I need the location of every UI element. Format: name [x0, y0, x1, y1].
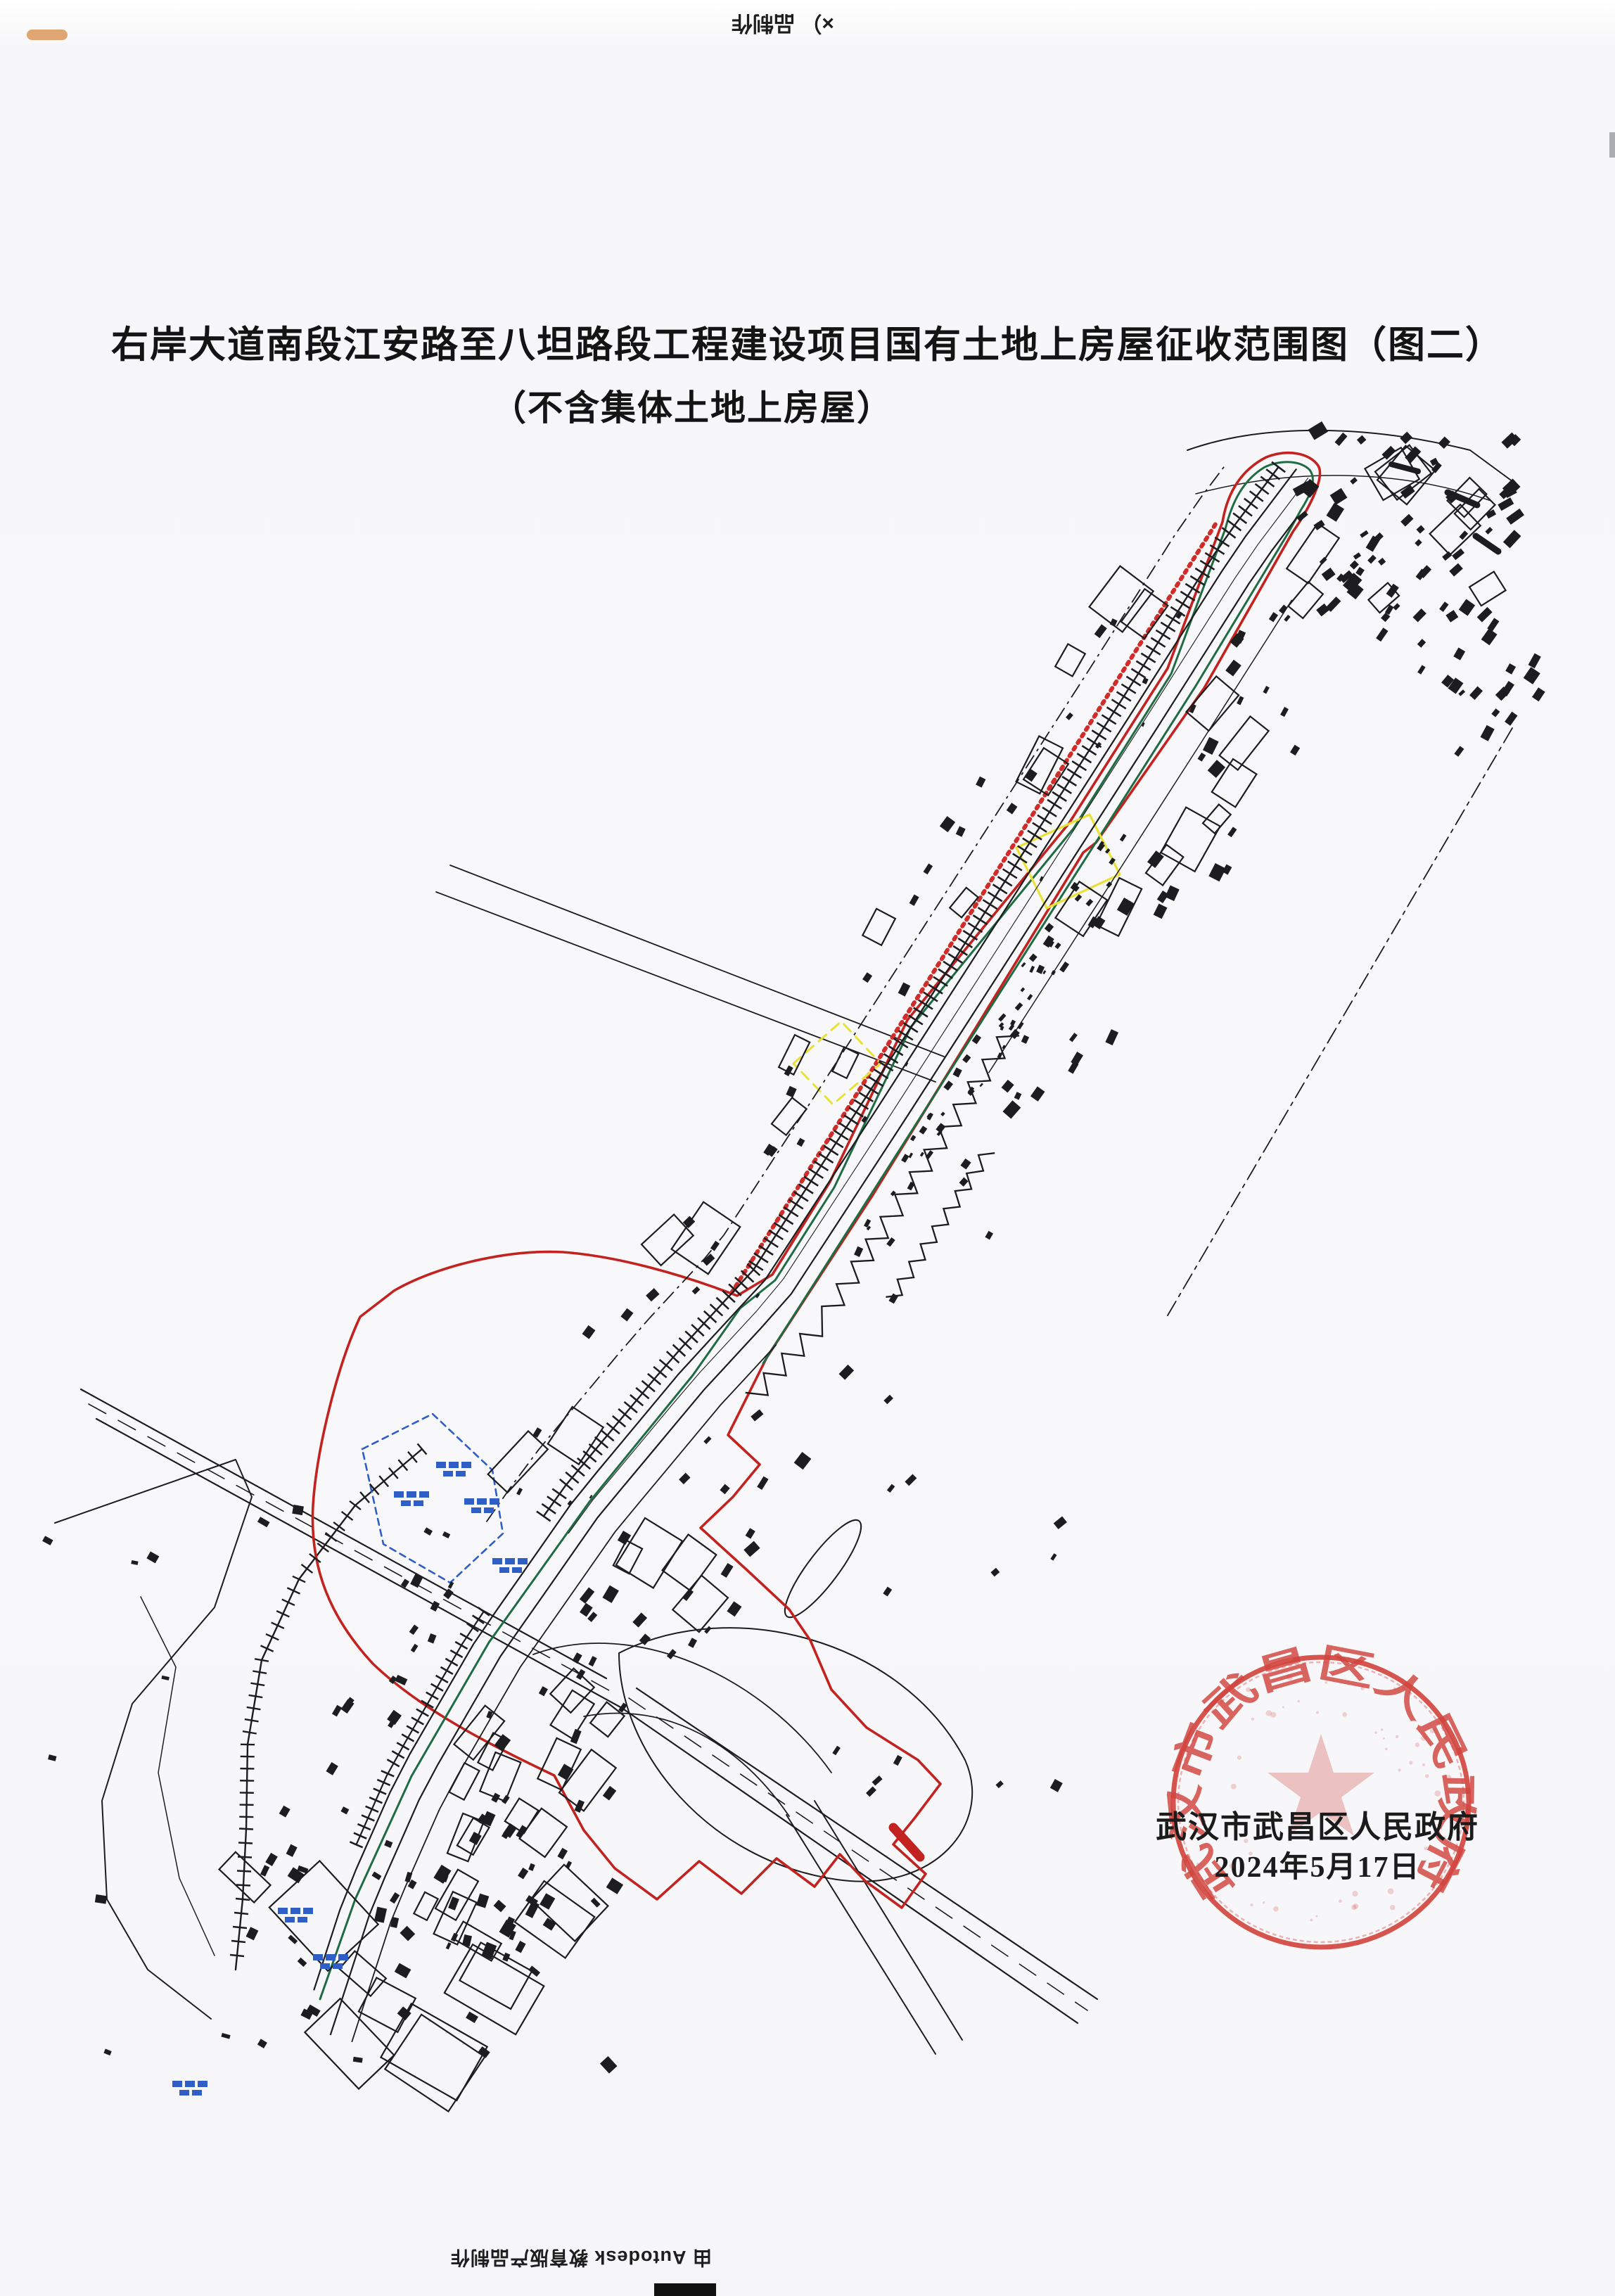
- shore-building-mark: [1415, 539, 1422, 546]
- shore-building-mark: [1454, 746, 1464, 756]
- embankment-tick: [455, 1642, 467, 1649]
- embankment-tick: [601, 1430, 613, 1441]
- embankment-tick: [804, 1177, 818, 1186]
- seal-ink-speck: [1310, 1919, 1313, 1922]
- shore-building-mark: [1506, 509, 1524, 525]
- embankment-tick: [426, 1692, 438, 1699]
- building-mark: [1094, 624, 1107, 638]
- building-mark: [898, 983, 911, 997]
- embankment-tick: [1161, 623, 1175, 632]
- embankment-tick: [362, 1815, 374, 1820]
- building-mark: [924, 863, 933, 874]
- south-road-edge-2: [815, 1801, 962, 2040]
- embankment-tick: [618, 1409, 631, 1420]
- building-mark: [572, 1652, 582, 1664]
- building-mark: [570, 1729, 582, 1744]
- building-mark: [1290, 745, 1300, 755]
- building-outline: [1186, 676, 1239, 730]
- building-outline: [520, 1809, 567, 1857]
- map-drawing: 武汉市武昌区人民政府 武汉市武昌区人民政府 2024年5月17日: [0, 0, 1615, 2296]
- building-mark: [374, 1907, 387, 1923]
- building-mark: [494, 1734, 511, 1752]
- embankment-hatch-base: [544, 467, 1279, 1517]
- scattered-dot: [1054, 1517, 1067, 1529]
- scattered-dot: [887, 1484, 895, 1493]
- building-mark: [1376, 627, 1388, 642]
- seal-ink-speck: [1196, 1863, 1199, 1866]
- embankment-tick: [1072, 761, 1086, 770]
- blue-label-mark: [192, 2090, 202, 2096]
- embankment-tick: [1175, 599, 1189, 608]
- embankment-tick: [440, 1667, 452, 1674]
- building-outline: [480, 1752, 521, 1801]
- interchange-loop: [619, 1628, 972, 1881]
- embankment-tick: [1008, 861, 1022, 870]
- scattered-dot: [883, 1587, 892, 1597]
- embankment-tick: [759, 1246, 773, 1255]
- railway-tie: [230, 1955, 244, 1956]
- scattered-dot: [990, 1568, 1000, 1577]
- embankment-tick: [1077, 753, 1091, 763]
- embankment-tick: [1107, 707, 1121, 716]
- building-mark: [588, 1656, 596, 1666]
- embankment-tick: [839, 1123, 853, 1132]
- embankment-tick: [993, 884, 1007, 893]
- embankment-tick: [1033, 823, 1047, 832]
- building-outline: [414, 1892, 438, 1920]
- building-mark: [854, 1246, 863, 1257]
- blue-label-mark: [464, 1498, 474, 1505]
- railway-tie: [250, 1683, 264, 1685]
- embankment-rubble: [901, 1154, 909, 1163]
- embankment-tick: [407, 1726, 419, 1733]
- seal-ink-speck: [1454, 1822, 1456, 1824]
- railway-tie: [238, 1843, 253, 1844]
- seal-ink-speck: [1351, 1905, 1356, 1910]
- embankment-tick: [625, 1402, 637, 1412]
- embankment-rubble: [1054, 943, 1061, 950]
- embankment-tick: [809, 1169, 823, 1178]
- building-mark: [543, 1918, 556, 1930]
- scattered-dot: [1050, 1553, 1057, 1561]
- embankment-rubble: [936, 1123, 945, 1133]
- shore-building-mark: [1449, 563, 1463, 577]
- building-mark: [528, 1863, 535, 1871]
- shore-building-mark: [1469, 686, 1483, 700]
- scattered-dot: [48, 1754, 56, 1761]
- embankment-tick: [411, 1718, 423, 1725]
- embankment-rubble: [979, 1083, 983, 1088]
- railway-tie: [293, 1576, 305, 1582]
- embankment-tick: [1131, 669, 1145, 678]
- seal-ink-speck: [1282, 1707, 1284, 1709]
- embankment-rubble: [864, 1219, 871, 1227]
- embankment-tick: [1180, 592, 1194, 601]
- embankment-tick: [834, 1130, 848, 1140]
- embankment-tick: [1141, 653, 1155, 663]
- southeast-road-edge-1: [637, 1688, 1097, 1999]
- watermark-bottom: 由 Autodesk 教育版产品制作: [450, 2245, 712, 2273]
- building-mark: [332, 1705, 342, 1717]
- building-mark: [1007, 803, 1018, 814]
- building-mark: [1279, 605, 1287, 614]
- railway-tie: [243, 1731, 257, 1733]
- building-mark: [1269, 612, 1278, 622]
- building-mark: [591, 1898, 601, 1908]
- seal-ink-speck: [1415, 1742, 1420, 1747]
- building-mark: [1367, 555, 1377, 564]
- seal-ink-speck: [1421, 1735, 1426, 1741]
- embankment-tick: [799, 1185, 813, 1194]
- embankment-tick: [1042, 808, 1057, 817]
- embankment-tick: [445, 1659, 457, 1666]
- building-mark: [1225, 660, 1241, 677]
- scattered-dot: [257, 1517, 270, 1527]
- scattered-dot: [131, 1560, 138, 1565]
- scattered-dot: [832, 1746, 841, 1756]
- shore-building-mark: [1322, 568, 1336, 581]
- shore-building-mark: [1313, 520, 1324, 530]
- embankment-tick: [1112, 699, 1126, 708]
- embankment-rubble: [1029, 966, 1035, 973]
- building-mark: [688, 1638, 697, 1648]
- embankment-tick: [819, 1154, 833, 1163]
- embankment-tick: [648, 1374, 660, 1384]
- shore-building-mark: [1400, 514, 1413, 527]
- west-road-edge-2: [96, 1419, 622, 1708]
- expropriation-boundary-red: [312, 453, 1320, 1908]
- building-mark: [1154, 903, 1168, 919]
- building-mark: [428, 1633, 437, 1644]
- railway-tie: [342, 1512, 353, 1520]
- embankment-tick: [583, 1451, 596, 1462]
- seal-ink-speck: [1231, 1784, 1237, 1790]
- building-outline: [1161, 808, 1220, 872]
- building-mark: [1030, 1086, 1045, 1101]
- building-mark: [1197, 753, 1206, 762]
- embankment-tick: [552, 1489, 566, 1499]
- building-mark: [539, 1686, 548, 1696]
- embankment-rubble: [920, 1152, 924, 1157]
- railway-tie: [253, 1671, 267, 1673]
- embankment-tick: [998, 876, 1012, 886]
- embankment-tick: [473, 1615, 484, 1623]
- seal-ink-speck: [1396, 1735, 1399, 1739]
- railway-tie: [260, 1645, 273, 1651]
- seal-ink-speck: [1445, 1775, 1451, 1780]
- shore-building-mark: [1505, 712, 1517, 726]
- embankment-tick: [374, 1789, 386, 1794]
- stream-line: [746, 1035, 1019, 1395]
- blue-label-mark: [443, 1471, 453, 1477]
- shore-building-mark: [1453, 648, 1465, 661]
- corridor-road-edge-2: [352, 1345, 776, 2042]
- scattered-dot: [292, 1505, 304, 1515]
- embankment-tick: [636, 1388, 649, 1398]
- embankment-tick: [431, 1684, 443, 1691]
- building-outline: [454, 1706, 504, 1760]
- embankment-tick: [571, 1465, 584, 1476]
- building-mark: [279, 1806, 291, 1818]
- blue-label-mark: [338, 1954, 348, 1960]
- embankment-tick: [963, 931, 977, 940]
- railway-tie: [272, 1623, 284, 1628]
- scattered-dot: [161, 1676, 169, 1680]
- embankment-rubble: [1120, 834, 1127, 841]
- building-mark: [587, 1612, 597, 1622]
- seal-ink-speck: [1409, 1761, 1412, 1764]
- blue-label-mark: [291, 1908, 300, 1914]
- building-mark: [1208, 863, 1226, 881]
- building-mark: [516, 1488, 523, 1495]
- embankment-rubble: [919, 1125, 927, 1134]
- embankment-tick: [1266, 469, 1279, 479]
- building-mark: [1284, 615, 1290, 622]
- building-mark: [1014, 1092, 1022, 1100]
- shore-building-mark: [1417, 665, 1426, 674]
- building-mark: [260, 1865, 269, 1876]
- building-outline: [663, 1534, 717, 1590]
- building-mark: [390, 1892, 400, 1903]
- embankment-tick: [904, 1023, 918, 1032]
- building-outline: [772, 1097, 807, 1135]
- building-mark: [1002, 1080, 1014, 1092]
- blue-label-mark: [303, 1908, 313, 1914]
- building-mark: [786, 1086, 796, 1097]
- embankment-rubble: [962, 1054, 971, 1064]
- embankment-tick: [938, 969, 952, 978]
- building-mark: [1059, 962, 1069, 973]
- embankment-tick: [630, 1395, 643, 1405]
- shore-building-outline: [1469, 572, 1506, 606]
- embankment-tick: [595, 1437, 608, 1448]
- embankment-rubble: [1021, 988, 1026, 993]
- railway-tie: [255, 1659, 269, 1661]
- embankment-rubble: [909, 1153, 913, 1159]
- embankment-rubble: [1086, 899, 1094, 907]
- building-mark: [751, 1409, 763, 1421]
- embankment-tick: [542, 1504, 556, 1514]
- seal-ink-speck: [1352, 1891, 1358, 1896]
- blue-label-mark: [505, 1558, 515, 1564]
- seal-date-text: 2024年5月17日: [1214, 1851, 1420, 1884]
- embankment-tick: [1047, 800, 1061, 809]
- north-shore-line-1: [1187, 431, 1518, 485]
- seal-ink-speck: [1388, 1888, 1394, 1894]
- embankment-tick: [436, 1676, 448, 1683]
- building-mark: [286, 1844, 298, 1857]
- building-mark: [600, 2056, 618, 2074]
- scan-black-bar: [654, 2283, 716, 2296]
- building-mark: [1069, 1033, 1078, 1042]
- seal-ink-speck: [1251, 1718, 1255, 1721]
- building-mark: [1105, 1029, 1118, 1045]
- railway-tie: [239, 1829, 253, 1830]
- building-mark: [606, 1877, 623, 1894]
- building-mark: [298, 1958, 307, 1967]
- embankment-tick: [1227, 521, 1241, 530]
- building-mark: [1263, 686, 1269, 694]
- blue-label-mark: [499, 1567, 509, 1573]
- shore-building-mark: [1334, 433, 1347, 446]
- building-mark: [646, 1288, 659, 1301]
- embankment-tick: [1102, 715, 1116, 724]
- embankment-tick: [377, 1780, 390, 1785]
- seal-ink-speck: [1266, 1710, 1272, 1716]
- blue-label-mark: [394, 1491, 404, 1498]
- building-mark: [956, 826, 966, 836]
- scattered-dot: [995, 1780, 1003, 1788]
- embankment-rubble: [1015, 1002, 1023, 1011]
- building-mark: [888, 1294, 898, 1304]
- embankment-tick: [1057, 784, 1071, 793]
- seal-ink-speck: [1381, 1728, 1384, 1731]
- building-mark: [1029, 953, 1038, 962]
- embankment-tick: [779, 1215, 793, 1224]
- building-mark: [1026, 769, 1038, 782]
- seal-ink-speck: [1246, 1688, 1251, 1692]
- embankment-tick: [1239, 506, 1252, 516]
- building-mark: [710, 1241, 720, 1251]
- shore-building-mark: [1532, 687, 1545, 701]
- embankment-tick: [794, 1192, 808, 1201]
- corridor-road-edge-3: [568, 478, 1308, 1533]
- building-mark: [1066, 713, 1073, 720]
- embankment-tick: [1151, 638, 1165, 647]
- blue-label-mark: [449, 1462, 459, 1468]
- railway-tie: [245, 1719, 259, 1721]
- blue-label-mark: [172, 2081, 182, 2087]
- embankment-tick: [754, 1254, 768, 1263]
- building-mark: [862, 972, 872, 983]
- railway-tie: [249, 1695, 263, 1697]
- building-mark: [721, 1563, 734, 1578]
- embankment-tick: [350, 1842, 362, 1847]
- scattered-dot: [872, 1775, 883, 1786]
- building-mark: [1227, 827, 1237, 837]
- official-seal: 武汉市武昌区人民政府 武汉市武昌区人民政府 2024年5月17日: [1156, 1640, 1479, 1947]
- embankment-tick: [1052, 792, 1066, 801]
- embankment-tick: [369, 1797, 382, 1803]
- blue-label-mark: [401, 1500, 411, 1506]
- building-outline: [862, 909, 895, 945]
- blue-label-mark: [492, 1558, 502, 1564]
- stream-line-2: [886, 1153, 995, 1297]
- building-mark: [494, 1900, 506, 1913]
- blue-label-mark: [518, 1558, 528, 1564]
- building-mark: [1165, 885, 1180, 901]
- building-outline: [950, 888, 978, 918]
- blue-label-mark: [414, 1500, 423, 1506]
- seal-ink-speck: [1390, 1905, 1395, 1910]
- embankment-tick: [764, 1238, 778, 1247]
- building-outline: [1055, 644, 1085, 677]
- scattered-dot: [1050, 1779, 1063, 1792]
- building-mark: [446, 1942, 452, 1949]
- building-mark: [909, 894, 919, 905]
- shore-building-mark: [1360, 530, 1369, 538]
- building-mark: [959, 1178, 969, 1187]
- seal-ink-speck: [1273, 1906, 1279, 1912]
- blue-label-mark: [185, 2081, 195, 2087]
- embankment-rubble: [1027, 994, 1033, 1000]
- embankment-tick: [1062, 777, 1076, 786]
- railway-tie: [282, 1600, 295, 1605]
- scattered-dot: [905, 1474, 917, 1486]
- building-outline: [548, 1407, 604, 1465]
- building-mark: [1117, 898, 1135, 916]
- embankment-tick: [983, 900, 997, 909]
- embankment-tick: [978, 907, 992, 917]
- embankment-tick: [566, 1472, 578, 1483]
- railway-tie: [266, 1634, 279, 1640]
- embankment-tick: [814, 1161, 828, 1171]
- railway-tie: [247, 1707, 261, 1709]
- building-mark: [1021, 1035, 1029, 1044]
- blue-label-mark: [490, 1498, 499, 1505]
- building-mark: [720, 1484, 729, 1495]
- building-mark: [746, 1528, 755, 1538]
- embankment-tick: [1038, 815, 1052, 824]
- building-mark: [515, 1941, 525, 1953]
- embankment-rubble: [952, 1068, 962, 1078]
- blue-label-mark: [461, 1462, 471, 1468]
- embankment-tick: [1126, 677, 1140, 686]
- embankment-tick: [988, 892, 1002, 901]
- embankment-tick: [849, 1107, 863, 1116]
- building-mark: [794, 1452, 812, 1469]
- embankment-tick: [560, 1479, 573, 1490]
- building-mark: [1203, 737, 1219, 755]
- railway-tie: [276, 1611, 289, 1616]
- building-mark: [602, 1586, 618, 1603]
- south-block-outline: [269, 1861, 378, 1970]
- scattered-dot: [221, 2033, 230, 2039]
- west-parcel-boundary: [55, 1460, 252, 2019]
- embankment-tick: [824, 1146, 838, 1155]
- embankment-tick: [968, 923, 982, 932]
- building-mark: [1355, 567, 1365, 576]
- seal-ink-speck: [1325, 1681, 1328, 1684]
- embankment-tick: [642, 1381, 655, 1391]
- building-outline: [832, 1047, 858, 1078]
- railway-tie: [301, 1564, 312, 1573]
- embankment-tick: [1146, 646, 1160, 655]
- embankment-tick: [774, 1223, 788, 1232]
- seal-ink-speck: [1315, 1915, 1317, 1917]
- building-mark: [704, 1626, 711, 1634]
- embankment-tick: [789, 1199, 803, 1208]
- building-mark: [603, 1786, 616, 1801]
- shore-building-mark: [1458, 689, 1465, 696]
- seal-ink-speck: [1249, 1851, 1252, 1855]
- embankment-tick: [1156, 630, 1170, 639]
- embankment-tick: [450, 1650, 462, 1657]
- embankment-tick: [613, 1416, 625, 1427]
- scattered-dot: [340, 1806, 349, 1814]
- corridor-dot: [1040, 876, 1044, 881]
- seal-ink-speck: [1263, 1901, 1265, 1904]
- building-mark: [466, 2012, 478, 2023]
- shore-building-mark: [1459, 599, 1475, 616]
- seal-ink-speck: [1237, 1756, 1241, 1760]
- building-mark: [478, 2046, 490, 2058]
- embankment-tick: [416, 1709, 428, 1716]
- blue-label-mark: [471, 1507, 481, 1513]
- blue-label-mark: [298, 1917, 307, 1922]
- building-mark: [940, 816, 955, 832]
- embankment-rubble: [1045, 923, 1054, 933]
